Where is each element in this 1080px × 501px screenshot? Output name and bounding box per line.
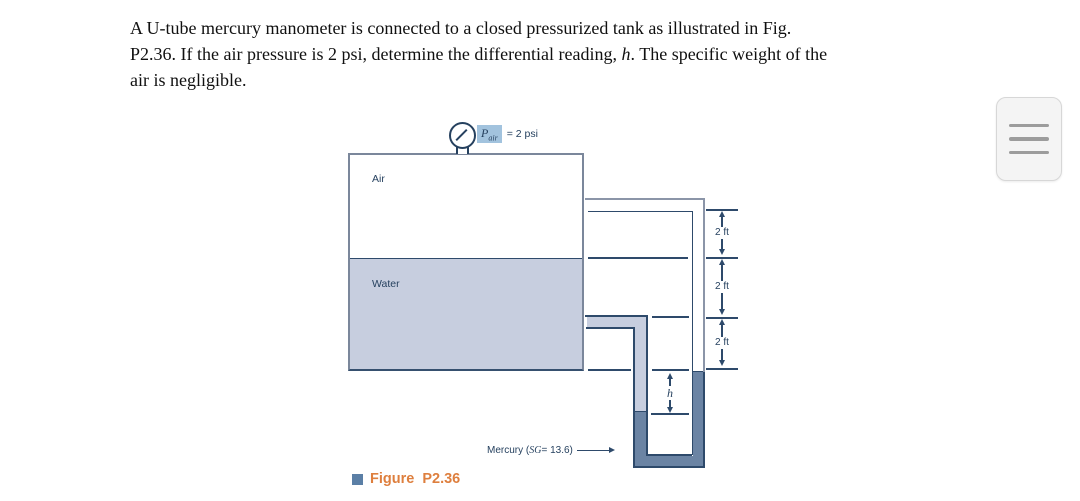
dimension-label: 2 ft	[715, 338, 729, 348]
mercury-right-column	[693, 371, 703, 466]
dimension-label: 2 ft	[715, 228, 729, 238]
gauge-value: = 2 psi	[507, 128, 538, 140]
arrow-down-icon	[719, 249, 725, 255]
gauge-label: Pair = 2 psi	[477, 125, 538, 143]
mercury-bottom-bend	[635, 456, 703, 466]
gauge-needle	[455, 129, 467, 141]
water-region-label: Water	[372, 278, 400, 290]
dimension-label: 2 ft	[715, 282, 729, 292]
ref-line-mercury-left	[651, 413, 689, 415]
left-tube-inner-line-horizontal	[586, 327, 634, 329]
mercury-callout: Mercury (SG = 13.6)	[487, 445, 609, 456]
pressure-gauge-icon	[449, 122, 476, 149]
u-bend-outer-bottom-line	[633, 466, 705, 468]
caption-text: Figure P2.36	[370, 471, 460, 487]
dimension-2ft-middle: 2 ft	[709, 259, 735, 315]
page: A U-tube mercury manometer is connected …	[0, 0, 1080, 501]
callout-arrow-icon	[577, 450, 609, 452]
caption-square-icon	[352, 474, 363, 485]
ref-line-mercury-right-b	[652, 369, 689, 371]
ref-line-mercury-right-a	[588, 369, 631, 371]
u-bend-outer-right-line	[703, 372, 705, 468]
h-dimension: h	[662, 373, 678, 413]
arrow-down-icon	[719, 360, 725, 366]
menu-button[interactable]	[996, 97, 1062, 181]
mercury-left-column	[635, 411, 646, 458]
problem-statement: A U-tube mercury manometer is connected …	[130, 15, 1010, 93]
statement-line-3: air is negligible.	[130, 67, 1010, 93]
arrow-down-icon	[719, 309, 725, 315]
dim-tick-4	[706, 368, 738, 370]
dimension-2ft-top: 2 ft	[709, 211, 735, 255]
ref-line-water-surface	[588, 257, 688, 259]
dimension-2ft-bottom: 2 ft	[709, 319, 735, 366]
water-fill	[350, 258, 582, 369]
variable-h: h	[622, 44, 631, 64]
statement-line-1: A U-tube mercury manometer is connected …	[130, 15, 1010, 41]
ref-line-middle	[652, 316, 689, 318]
arrow-down-icon	[667, 407, 673, 413]
statement-line-2: P2.36. If the air pressure is 2 psi, det…	[130, 41, 1010, 67]
u-bend-inner-line	[647, 454, 692, 456]
figure-caption: Figure P2.36	[352, 471, 460, 487]
air-region-label: Air	[372, 173, 385, 185]
h-dimension-label: h	[666, 387, 674, 399]
pair-highlight: Pair	[477, 125, 502, 143]
